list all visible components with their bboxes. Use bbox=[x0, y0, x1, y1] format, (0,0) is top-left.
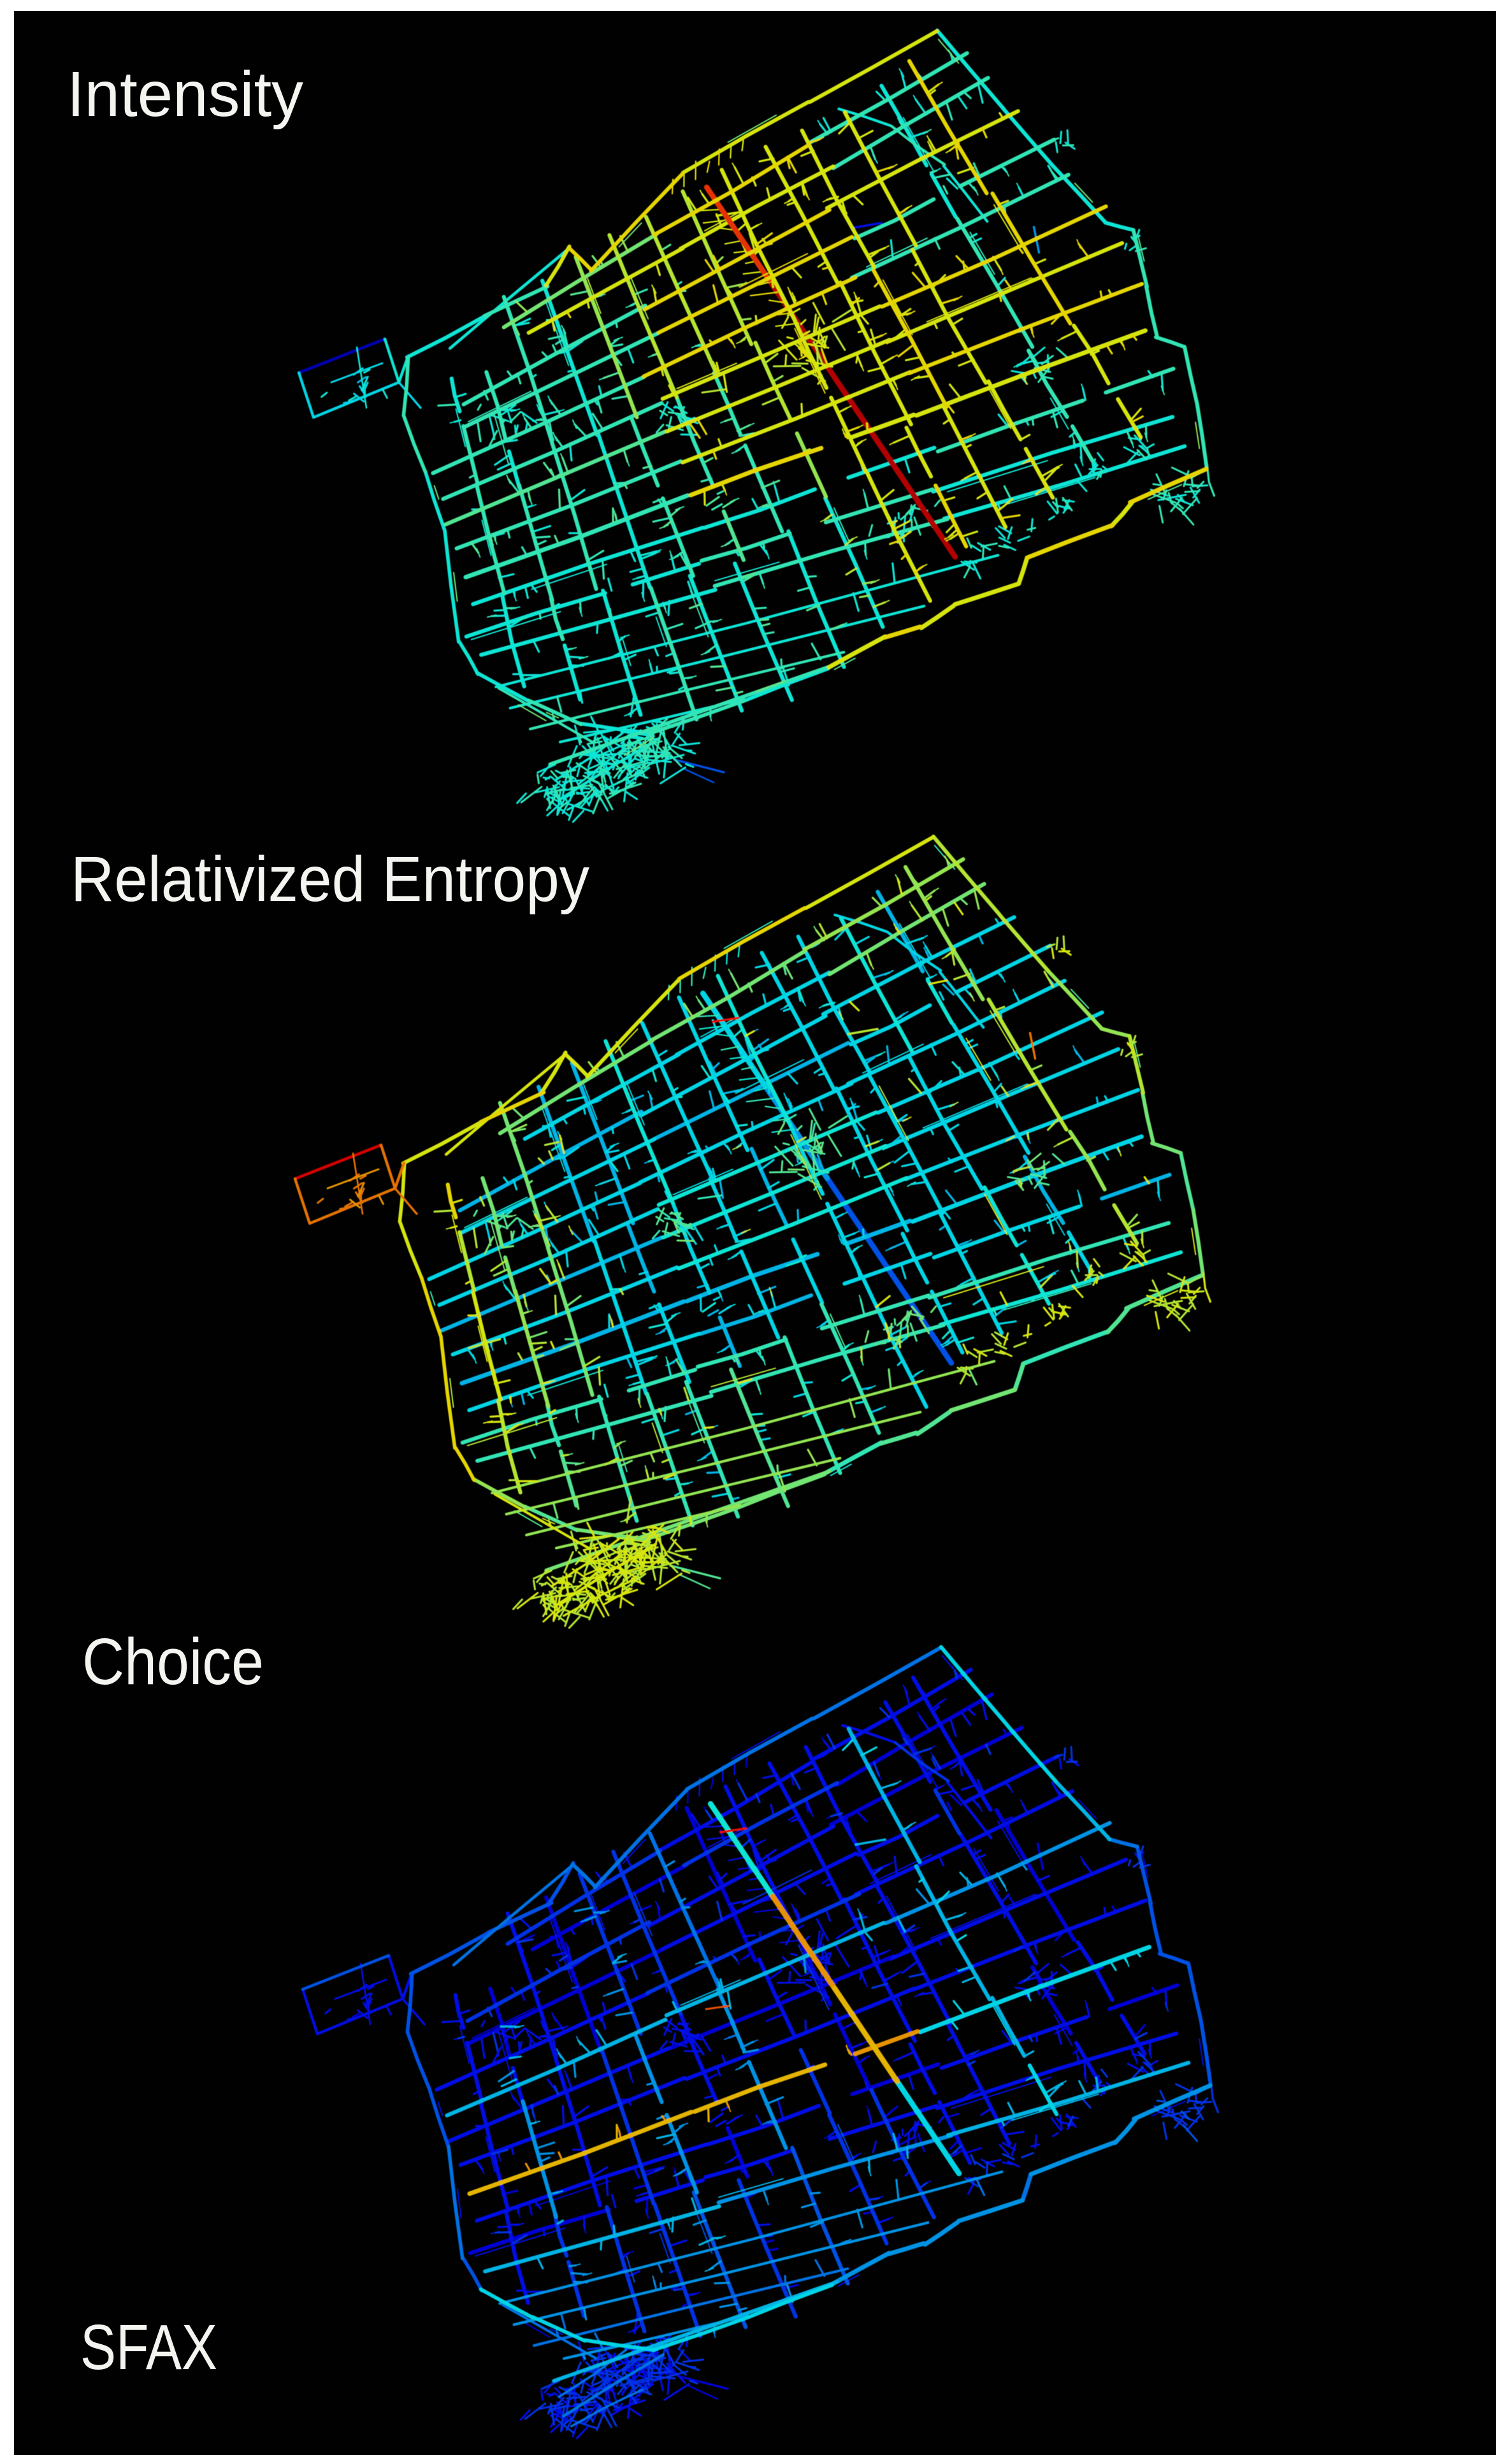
svg-text:Relativized Entropy: Relativized Entropy bbox=[71, 844, 589, 915]
svg-text:Choice: Choice bbox=[82, 1625, 264, 1698]
svg-text:SFAX: SFAX bbox=[80, 2312, 217, 2383]
svg-text:Intensity: Intensity bbox=[67, 59, 303, 130]
